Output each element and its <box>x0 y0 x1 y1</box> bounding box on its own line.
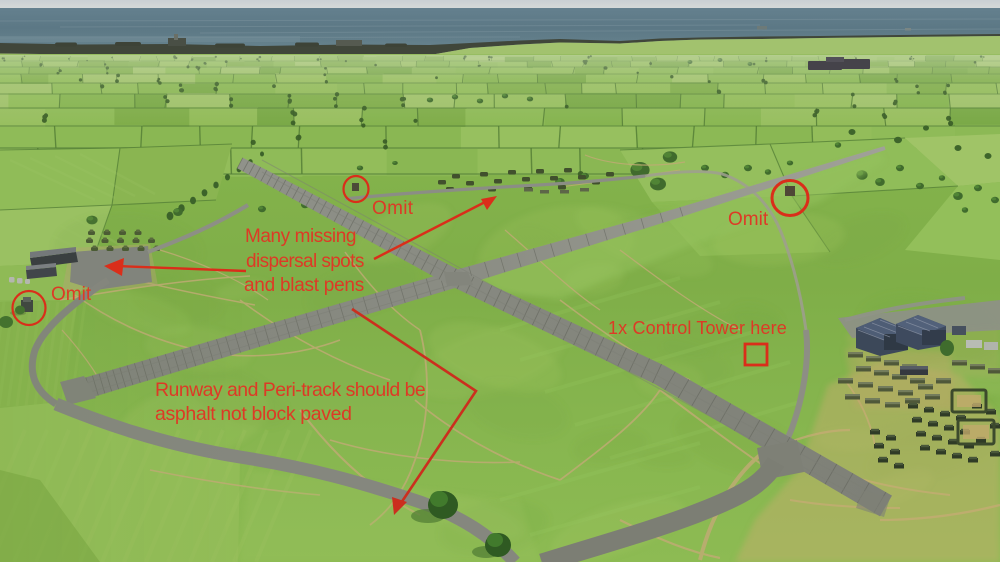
svg-text:Omit: Omit <box>728 209 769 230</box>
svg-text:dispersal spots: dispersal spots <box>246 251 364 272</box>
svg-text:Many missing: Many missing <box>245 226 356 247</box>
svg-text:Runway and Peri-track should b: Runway and Peri-track should be <box>155 379 425 401</box>
svg-text:asphalt not block paved: asphalt not block paved <box>155 403 352 425</box>
svg-text:1x Control Tower here: 1x Control Tower here <box>608 318 787 338</box>
svg-text:Omit: Omit <box>51 284 92 305</box>
svg-text:and blast pens: and blast pens <box>244 275 364 296</box>
svg-text:Omit: Omit <box>372 198 414 219</box>
